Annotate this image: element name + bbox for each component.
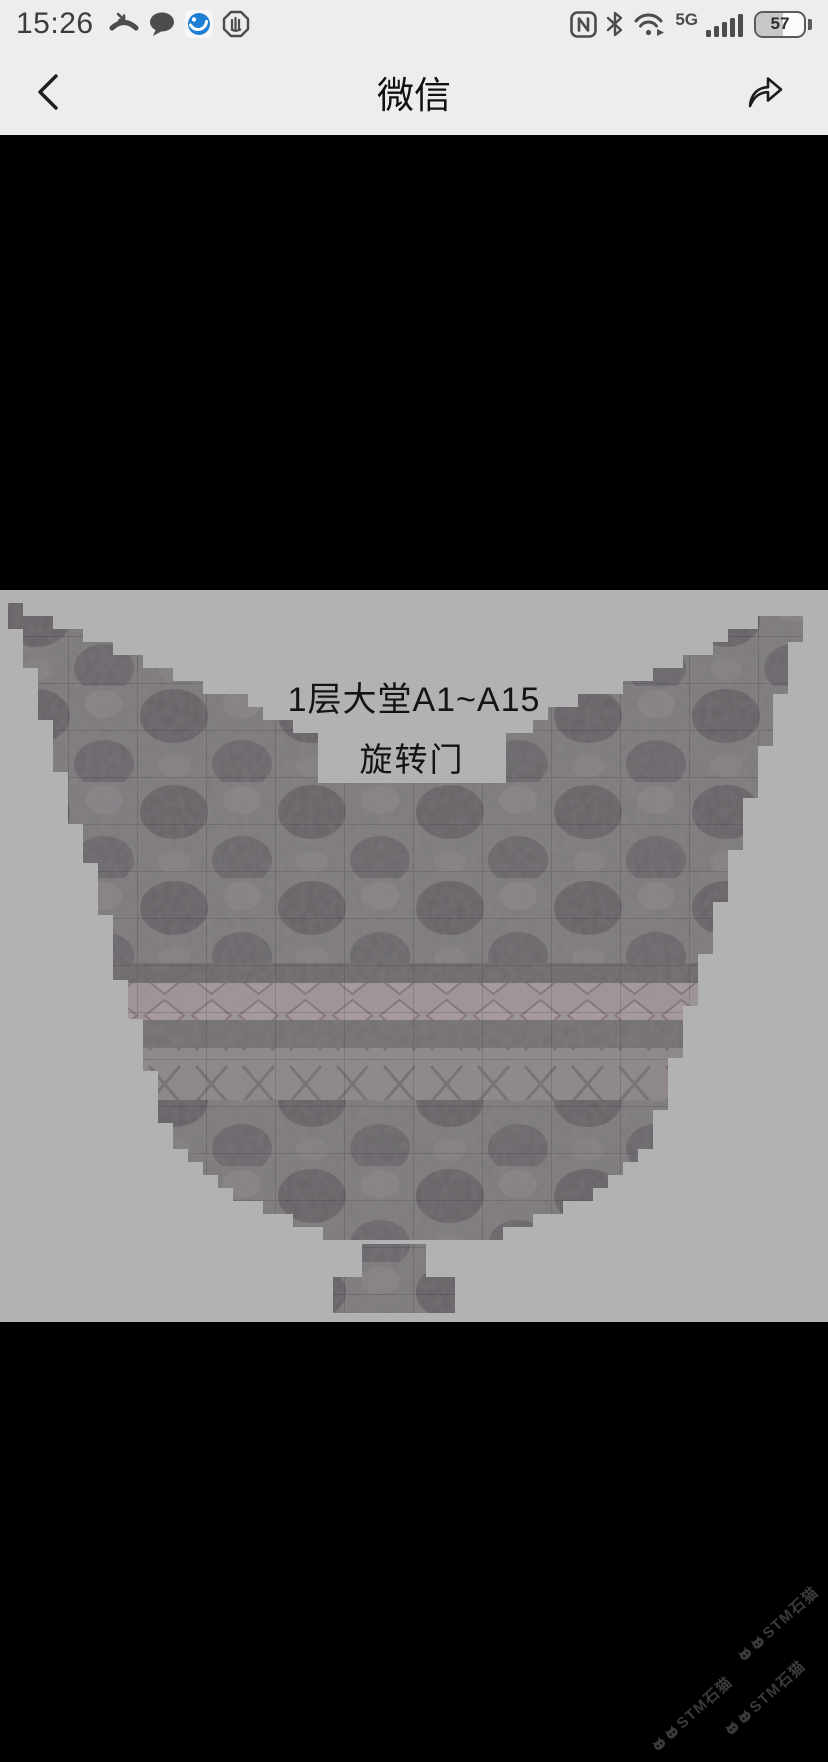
photo-viewer[interactable]: 1层大堂A1~A15 旋转门 STM石猫 STM石猫 STM石猫 (0, 135, 828, 1762)
nav-bar: 微信 (0, 48, 828, 135)
photo-caption-area: 1层大堂A1~A15 (0, 672, 828, 721)
message-bubble-icon (148, 11, 176, 37)
watermark: STM石猫 (646, 1671, 737, 1756)
forward-arrow-icon (743, 73, 787, 111)
photo-caption-door: 旋转门 (360, 733, 465, 781)
status-bar: 15:26 (0, 0, 828, 48)
network-type-label: 5G (675, 10, 698, 30)
nfc-icon (570, 11, 597, 38)
signal-bars-icon (706, 10, 746, 38)
battery-indicator: 57 (754, 11, 812, 38)
battery-tip (808, 19, 812, 30)
status-left: 15:26 (16, 7, 250, 41)
browser-app-icon (185, 10, 213, 38)
watermark: STM石猫 (719, 1655, 810, 1740)
revolving-door-notch: 旋转门 (318, 731, 506, 783)
hand-stop-icon (222, 10, 250, 38)
battery-body: 57 (754, 11, 806, 38)
stone-layout-photo: 1层大堂A1~A15 旋转门 (0, 590, 828, 1322)
watermark-text: STM石猫 (744, 1655, 809, 1717)
phone-screen: 15:26 (0, 0, 828, 1762)
watermark: STM石猫 (732, 1581, 823, 1666)
page-title: 微信 (0, 65, 828, 119)
status-right: 5G 57 (570, 10, 812, 38)
wifi-icon (633, 11, 667, 38)
missed-call-icon (109, 11, 139, 37)
clock: 15:26 (16, 7, 94, 41)
bluetooth-icon (605, 10, 625, 38)
watermark-text: STM石猫 (757, 1581, 822, 1643)
share-button[interactable] (730, 48, 800, 135)
battery-percent: 57 (756, 13, 804, 36)
top-chrome: 15:26 (0, 0, 828, 135)
